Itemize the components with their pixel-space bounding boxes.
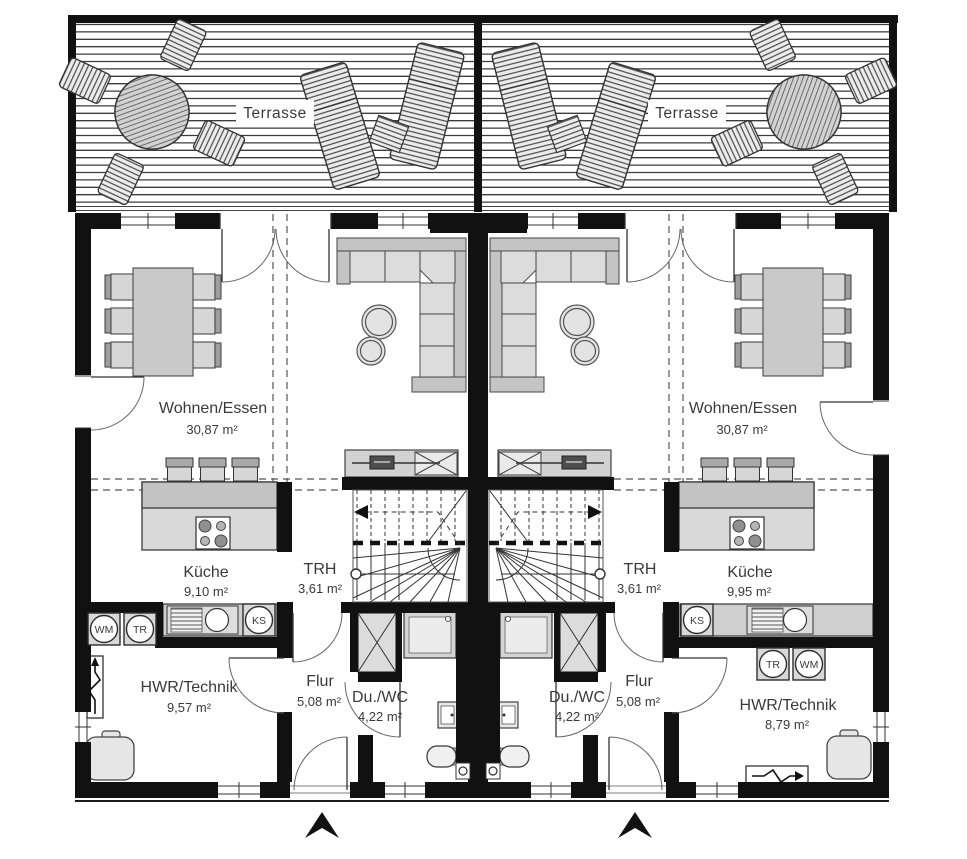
drainer-icon: [752, 608, 783, 632]
room-area: 8,79 m²: [765, 717, 810, 732]
room-area: 4,22 m²: [555, 709, 600, 724]
entrance-arrow-icon: [305, 812, 339, 838]
toilet-icon: [500, 746, 529, 767]
sink-icon: [206, 609, 229, 632]
washing-machine-icon: WM: [793, 648, 825, 680]
lounger-icon: [576, 62, 657, 191]
dining-table: [763, 268, 823, 376]
shower-icon: [404, 612, 456, 658]
bar-stools-left: [166, 458, 259, 481]
room-label: Du./WC: [352, 689, 408, 706]
floor-plan-canvas: Terrasse Terrasse: [0, 0, 967, 859]
tr-label: TR: [766, 659, 780, 671]
room-area: 30,87 m²: [716, 422, 768, 437]
room-area: 5,08 m²: [616, 694, 661, 709]
sideboard-tv-right: [498, 450, 611, 477]
room-area: 5,08 m²: [297, 694, 342, 709]
room-area: 9,10 m²: [184, 584, 229, 599]
terrace-label-left: Terrasse: [243, 105, 306, 122]
washbasin-icon: [438, 702, 457, 728]
fridge-icon: KS: [681, 604, 713, 636]
room-label: Flur: [306, 673, 334, 690]
drainer-icon: [171, 608, 202, 632]
room-area: 9,95 m²: [727, 584, 772, 599]
entrance-arrow-icon: [618, 812, 652, 838]
room-label: HWR/Technik: [141, 679, 239, 696]
terrace-divider-wall: [474, 15, 482, 212]
wm-label: WM: [800, 659, 819, 671]
installation-wall: [456, 602, 471, 763]
room-area: 3,61 m²: [617, 581, 662, 596]
room-area: 4,22 m²: [358, 709, 403, 724]
room-label: Flur: [625, 673, 653, 690]
cooktop-icon: [196, 517, 230, 549]
shower-icon: [500, 612, 552, 658]
dryer-icon: TR: [124, 613, 156, 645]
room-area: 3,61 m²: [298, 581, 343, 596]
installation-wall: [485, 602, 500, 763]
kitchen-island-left: [142, 482, 277, 550]
kitchen-island-right: [679, 482, 814, 550]
sideboard-tv-left: [345, 450, 458, 477]
dining-table: [133, 268, 193, 376]
room-label: Du./WC: [549, 689, 605, 706]
room-label: TRH: [624, 561, 657, 578]
fridge-icon: KS: [243, 604, 275, 636]
room-label: Küche: [727, 564, 772, 581]
room-label: HWR/Technik: [740, 697, 838, 714]
sink-icon: [784, 609, 807, 632]
terrace-edge-right: [889, 15, 897, 212]
wm-label: WM: [95, 624, 114, 636]
cooktop-icon: [730, 517, 764, 549]
tr-label: TR: [133, 624, 147, 636]
room-label: Wohnen/Essen: [689, 400, 797, 417]
room-area: 30,87 m²: [186, 422, 238, 437]
bar-stools-right: [701, 458, 794, 481]
room-area: 9,57 m²: [167, 700, 212, 715]
room-label: Küche: [183, 564, 228, 581]
ks-label: KS: [690, 615, 704, 627]
dining-set-left: [105, 268, 221, 376]
water-heater-icon: [86, 737, 134, 780]
terrace-edge-left: [68, 15, 76, 212]
washbasin-icon: [499, 702, 518, 728]
room-label: TRH: [304, 561, 337, 578]
washing-machine-icon: WM: [88, 613, 120, 645]
terrace-label-right: Terrasse: [655, 105, 718, 122]
floor-plan: Terrasse Terrasse: [0, 0, 967, 859]
room-label: Wohnen/Essen: [159, 400, 267, 417]
dining-set-right: [735, 268, 851, 376]
lounger-icon: [300, 62, 381, 191]
water-heater-icon: [827, 736, 871, 779]
ks-label: KS: [252, 615, 266, 627]
terrace: Terrasse Terrasse: [24, 0, 931, 240]
dryer-icon: TR: [757, 648, 789, 680]
toilet-icon: [427, 746, 456, 767]
